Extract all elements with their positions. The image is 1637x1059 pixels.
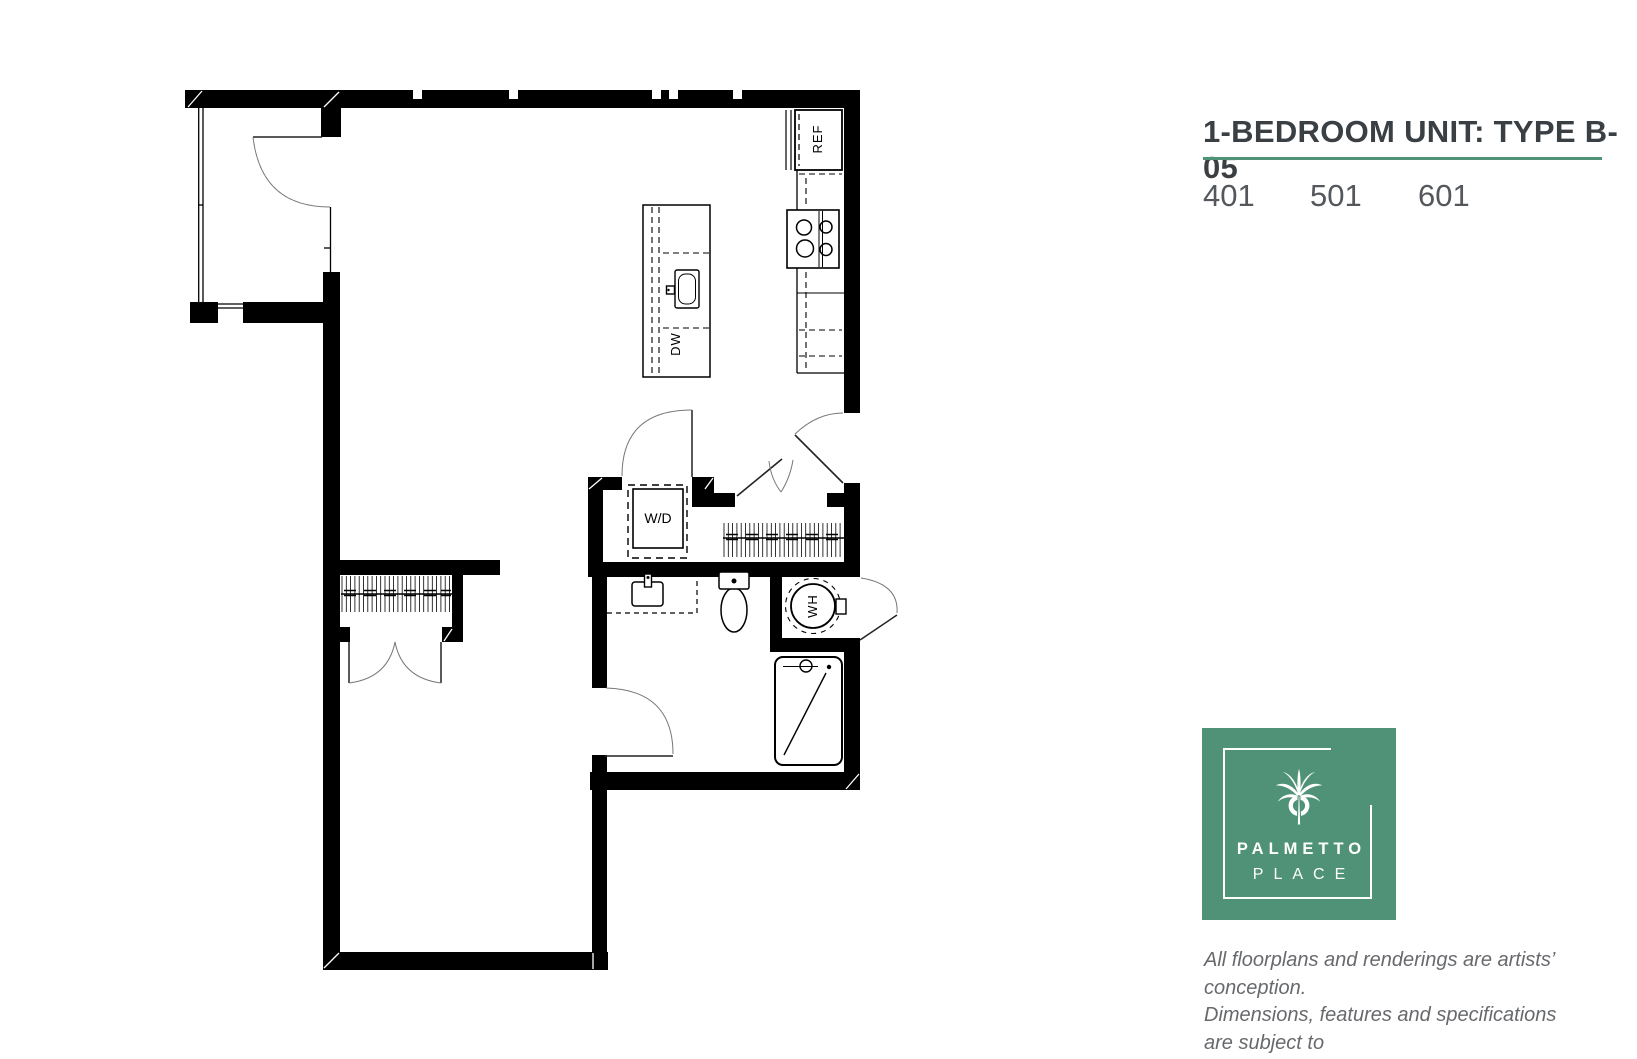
entry-vestibule-door xyxy=(253,137,330,207)
water-heater-label: WH xyxy=(805,594,820,618)
walk-in-closet-hangers xyxy=(723,523,845,557)
floor-plan-drawing: REF DW W/D WH xyxy=(180,80,910,980)
bedroom-closet-double-doors xyxy=(349,642,441,683)
logo-wordmark-line1: PALMETTO xyxy=(1202,840,1396,859)
vanity-sink xyxy=(606,574,697,613)
unit-number: 501 xyxy=(1310,178,1362,214)
stove xyxy=(787,210,839,268)
logo-frame xyxy=(1223,897,1372,899)
palmetto-place-logo: PALMETTO PLACE xyxy=(1202,728,1396,920)
unit-number: 401 xyxy=(1203,178,1255,214)
disclaimer-line: Dimensions, features and specifications … xyxy=(1204,1002,1584,1057)
walk-in-closet-double-doors xyxy=(737,413,843,496)
disclaimer-line: All floorplans and renderings are artist… xyxy=(1204,947,1584,1002)
title-underline xyxy=(1203,157,1602,160)
dishwasher-label: DW xyxy=(668,332,683,356)
unit-number: 601 xyxy=(1418,178,1470,214)
refrigerator-label: REF xyxy=(810,125,825,154)
vestibule-walls xyxy=(198,108,331,308)
palm-tree-icon xyxy=(1274,764,1324,826)
water-heater-closet-door xyxy=(860,578,897,640)
floorplan-page: { "title": { "text": "1-BEDROOM UNIT: TY… xyxy=(0,0,1637,1059)
bathroom-door xyxy=(605,688,673,756)
bedroom-closet-hangers xyxy=(341,576,452,612)
kitchen-counter xyxy=(797,170,844,373)
washer-closet-door xyxy=(622,410,692,477)
disclaimer-text: All floorplans and renderings are artist… xyxy=(1204,947,1584,1059)
logo-wordmark-line2: PLACE xyxy=(1202,866,1396,884)
toilet xyxy=(719,572,749,632)
logo-frame xyxy=(1223,748,1331,750)
page-title: 1-BEDROOM UNIT: TYPE B-05 xyxy=(1203,114,1637,186)
washer-dryer-label: W/D xyxy=(644,510,671,526)
shower xyxy=(775,657,842,765)
